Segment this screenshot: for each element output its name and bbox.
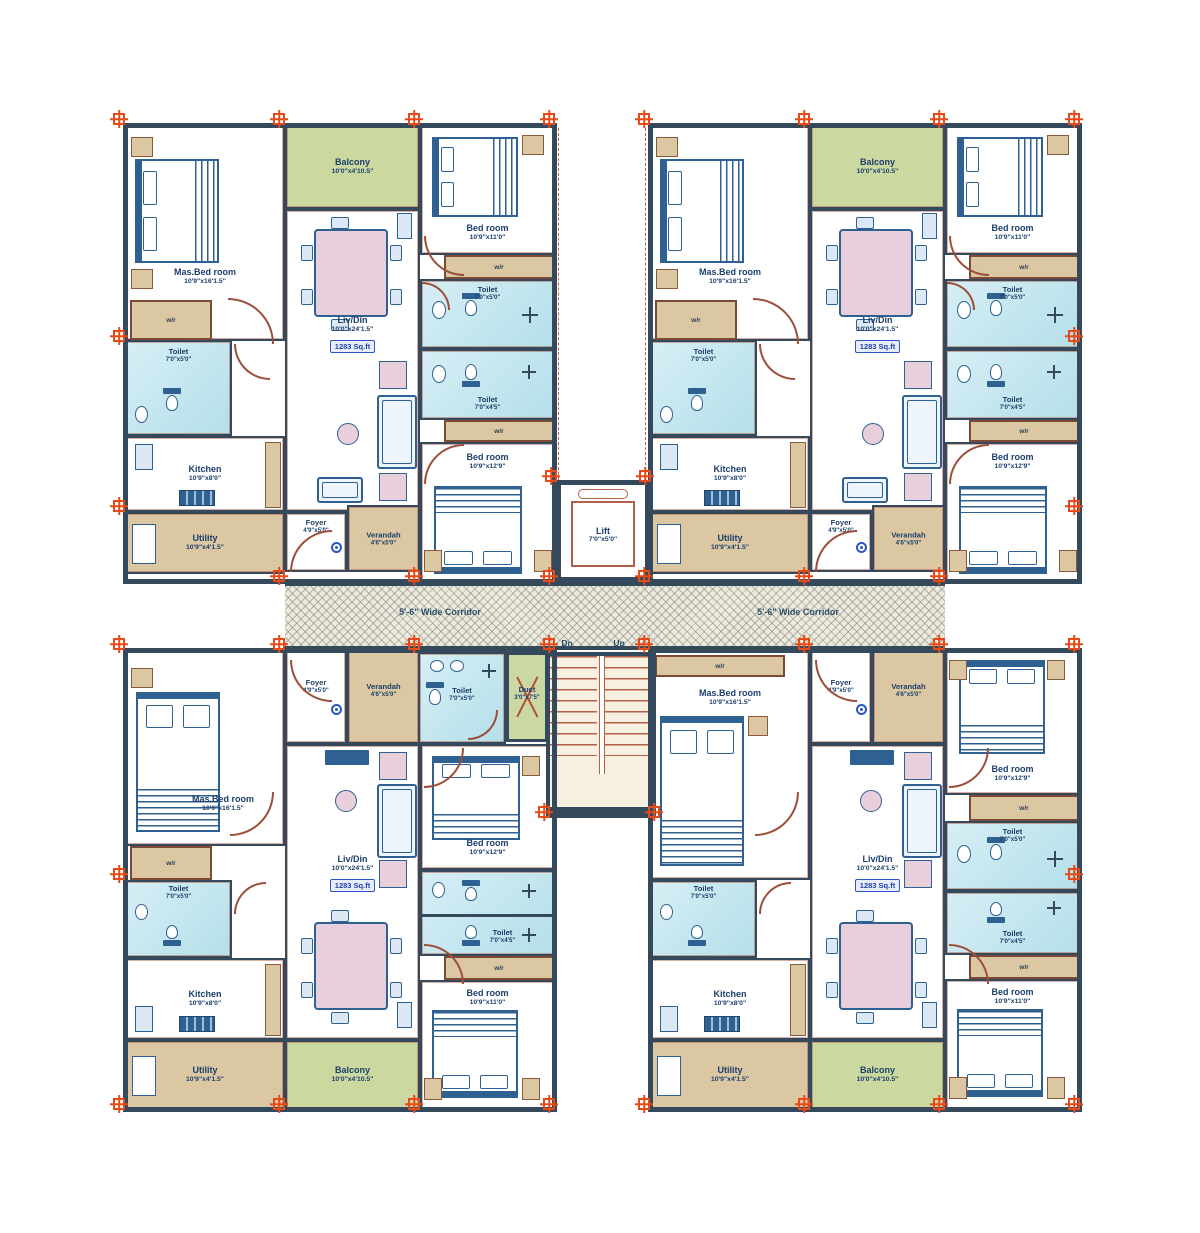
stool-icon <box>337 423 359 445</box>
verandah: Verandah4'6"x5'0" <box>347 650 420 744</box>
column-marker <box>798 570 810 582</box>
tv-cabinet-icon <box>325 750 369 765</box>
bed-icon <box>957 1009 1043 1097</box>
master-bedroom: Mas.Bed room10'9"x16'1.5" <box>650 650 810 880</box>
wash-basin-icon <box>450 660 464 672</box>
toilet-seat-icon <box>688 922 706 946</box>
column-marker <box>273 570 285 582</box>
area-badge: 1283 Sq.ft <box>855 340 900 353</box>
dining-table-icon <box>839 922 913 1010</box>
dining-table-icon <box>314 229 388 317</box>
nightstand-icon <box>949 660 967 680</box>
shower-icon <box>1047 365 1061 379</box>
column-marker <box>113 113 125 125</box>
stove-icon <box>704 490 740 506</box>
column-marker <box>408 570 420 582</box>
nightstand-icon <box>949 1077 967 1099</box>
wash-basin-icon <box>430 660 444 672</box>
tv-cabinet-icon <box>850 750 894 765</box>
coffee-table-icon <box>904 752 932 780</box>
nightstand-icon <box>1047 660 1065 680</box>
sofa-icon <box>902 395 942 469</box>
column-marker <box>543 1098 555 1110</box>
toilet: Toilet7'0"x5'0" <box>418 652 506 744</box>
column-marker <box>113 500 125 512</box>
column-marker <box>543 113 555 125</box>
chair-icon <box>331 910 349 922</box>
dining-table-icon <box>839 229 913 317</box>
door-arc-icon <box>759 344 795 380</box>
sink-icon <box>132 1056 156 1096</box>
wash-basin-icon <box>957 365 971 383</box>
coffee-table-icon <box>379 860 407 888</box>
foyer-badge <box>856 542 867 553</box>
sink-icon <box>657 524 681 564</box>
kitchen: Kitchen10'9"x8'0" <box>125 436 285 512</box>
corridor-flank-left <box>125 582 285 650</box>
chair-icon <box>826 938 838 954</box>
bed-icon <box>660 159 744 263</box>
stove-icon <box>704 1016 740 1032</box>
chair-icon <box>301 982 313 998</box>
utility: Utility10'9"x4'1.5" <box>650 1040 810 1110</box>
verandah: Verandah4'6"x5'0" <box>347 505 420 572</box>
verandah: Verandah4'6"x5'0" <box>872 650 945 744</box>
wardrobe: w/r <box>655 655 785 677</box>
toilet-seat-icon <box>462 293 480 319</box>
toilet: Toilet7'0"x5'0" <box>125 880 232 958</box>
bed-icon <box>957 137 1043 217</box>
sofa-icon <box>317 477 363 503</box>
chair-icon <box>826 245 838 261</box>
balcony: Balcony10'0"x4'10.5" <box>285 1040 420 1110</box>
lift: Lift7'0"x5'0" <box>556 480 650 582</box>
bed-icon <box>959 486 1047 574</box>
chair-icon <box>856 217 874 229</box>
sink-icon <box>132 524 156 564</box>
living-dining: Liv/Din10'0"x24'1.5"1283 Sq.ft <box>285 209 420 512</box>
nightstand-icon <box>424 1078 442 1100</box>
fridge-icon <box>922 1002 937 1028</box>
coffee-table-icon <box>379 361 407 389</box>
fridge-icon <box>397 213 412 239</box>
sink-icon <box>657 1056 681 1096</box>
wash-basin-icon <box>957 845 971 863</box>
stool-icon <box>335 790 357 812</box>
toilet-seat-icon <box>163 922 181 946</box>
shower-icon <box>522 365 536 379</box>
utility: Utility10'9"x4'1.5" <box>125 512 285 574</box>
kitchen-counter-icon <box>790 964 806 1036</box>
foyer-badge <box>331 704 342 715</box>
chair-icon <box>856 319 874 331</box>
column-marker <box>408 638 420 650</box>
nightstand-icon <box>131 137 153 157</box>
column-marker <box>113 1098 125 1110</box>
column-marker <box>639 470 651 482</box>
column-marker <box>1068 113 1080 125</box>
door-arc-icon <box>759 882 791 914</box>
stair-flight-up <box>605 656 652 756</box>
bed-icon <box>434 486 522 574</box>
shower-icon <box>482 664 496 678</box>
chair-icon <box>390 938 402 954</box>
balcony: Balcony10'0"x4'10.5" <box>810 1040 945 1110</box>
toilet-seat-icon <box>987 361 1005 387</box>
nightstand-icon <box>949 550 967 572</box>
nightstand-icon <box>1059 550 1077 572</box>
nightstand-icon <box>131 668 153 688</box>
balcony: Balcony10'0"x4'10.5" <box>285 125 420 209</box>
column-marker <box>933 638 945 650</box>
bedroom: Bed room10'9"x11'0" <box>420 980 555 1110</box>
chair-icon <box>331 1012 349 1024</box>
nightstand-icon <box>1047 135 1069 155</box>
balcony: Balcony10'0"x4'10.5" <box>810 125 945 209</box>
nightstand-icon <box>1047 1077 1065 1099</box>
fridge-icon <box>922 213 937 239</box>
floor-plan: 5'-6" Wide Corridor 5'-6" Wide Corridor … <box>0 0 1200 1233</box>
toilet-seat-icon <box>426 682 444 708</box>
door-arc-icon <box>949 236 989 276</box>
corridor-label: 5'-6" Wide Corridor <box>360 607 520 617</box>
wardrobe: w/r <box>969 795 1079 821</box>
construction-line <box>645 128 646 480</box>
toilet-seat-icon <box>163 388 181 414</box>
column-marker <box>545 470 557 482</box>
column-marker <box>638 1098 650 1110</box>
nightstand-icon <box>522 756 540 776</box>
toilet-seat-icon <box>987 293 1005 319</box>
kitchen: Kitchen10'9"x8'0" <box>650 436 810 512</box>
bed-icon <box>432 137 518 217</box>
chair-icon <box>915 938 927 954</box>
shower-icon <box>1047 901 1061 915</box>
kitchen: Kitchen10'9"x8'0" <box>125 958 285 1040</box>
toilet: Toilet7'0"x4'5" <box>420 349 555 420</box>
bed-icon <box>660 716 744 866</box>
chair-icon <box>390 982 402 998</box>
chair-icon <box>331 319 349 331</box>
chair-icon <box>301 938 313 954</box>
column-marker <box>798 113 810 125</box>
coffee-table-icon <box>904 860 932 888</box>
nightstand-icon <box>522 135 544 155</box>
column-marker <box>933 1098 945 1110</box>
chair-icon <box>390 289 402 305</box>
shower-icon <box>522 884 536 898</box>
sofa-icon <box>377 784 417 858</box>
column-marker <box>638 570 650 582</box>
column-marker <box>798 638 810 650</box>
chair-icon <box>826 982 838 998</box>
fridge-icon <box>660 444 678 470</box>
kitchen: Kitchen10'9"x8'0" <box>650 958 810 1040</box>
nightstand-icon <box>522 1078 540 1100</box>
nightstand-icon <box>131 269 153 289</box>
toilet-divider-wall <box>422 914 557 917</box>
stairs-up-label: Up <box>604 638 634 648</box>
toilet: Toilet7'0"x5'0" <box>650 340 757 436</box>
toilet: Toilet7'0"x5'0" <box>125 340 232 436</box>
lift-dims: 7'0"x5'0" <box>589 536 618 543</box>
column-marker <box>543 570 555 582</box>
door-arc-icon <box>424 236 464 276</box>
chair-icon <box>856 1012 874 1024</box>
column-marker <box>933 113 945 125</box>
toilet: Toilet7'0"x5'0" <box>650 880 757 958</box>
fridge-icon <box>135 1006 153 1032</box>
lift-label: Lift <box>596 526 610 536</box>
chair-icon <box>301 245 313 261</box>
bed-icon <box>136 692 220 832</box>
utility: Utility10'9"x4'1.5" <box>650 512 810 574</box>
chair-icon <box>331 217 349 229</box>
shower-icon <box>1047 307 1063 323</box>
column-marker <box>113 868 125 880</box>
kitchen-counter-icon <box>265 964 281 1036</box>
corridor-label: 5'-6" Wide Corridor <box>718 607 878 617</box>
nightstand-icon <box>424 550 442 572</box>
chair-icon <box>915 982 927 998</box>
chair-icon <box>856 910 874 922</box>
coffee-table-icon <box>904 361 932 389</box>
wash-basin-icon <box>432 882 445 898</box>
column-marker <box>1068 1098 1080 1110</box>
toilet-seat-icon <box>987 837 1005 863</box>
foyer-badge <box>856 704 867 715</box>
toilet: Toilet7'0"x5'0" <box>945 821 1080 891</box>
bedroom: Bed room10'9"x11'0" <box>945 979 1080 1110</box>
column-marker <box>1068 330 1080 342</box>
stair-rail <box>599 656 605 774</box>
bed-icon <box>959 660 1045 754</box>
shower-icon <box>522 928 536 942</box>
duct: Duct3'0"x7'5" <box>506 652 548 742</box>
column-marker <box>408 1098 420 1110</box>
kitchen-counter-icon <box>790 442 806 508</box>
area-badge: 1283 Sq.ft <box>855 879 900 892</box>
bed-icon <box>432 1010 518 1098</box>
coffee-table-icon <box>379 752 407 780</box>
coffee-table-icon <box>379 473 407 501</box>
living-dining: Liv/Din10'0"x24'1.5"1283 Sq.ft <box>810 209 945 512</box>
column-marker <box>1068 868 1080 880</box>
sofa-icon <box>377 395 417 469</box>
stool-icon <box>862 423 884 445</box>
wash-basin-icon <box>660 406 673 423</box>
column-marker <box>273 638 285 650</box>
stair-flight-down <box>550 656 597 756</box>
wash-basin-icon <box>432 365 446 383</box>
column-marker <box>538 806 550 818</box>
shower-icon <box>522 307 538 323</box>
corridor-flank-right <box>945 582 1080 650</box>
fridge-icon <box>660 1006 678 1032</box>
door-arc-icon <box>234 882 266 914</box>
chair-icon <box>915 289 927 305</box>
wash-basin-icon <box>135 904 148 920</box>
sofa-icon <box>902 784 942 858</box>
fridge-icon <box>135 444 153 470</box>
toilet-seat-icon <box>462 880 480 904</box>
stool-icon <box>860 790 882 812</box>
toilet-seat-icon <box>462 361 480 387</box>
area-badge: 1283 Sq.ft <box>330 340 375 353</box>
shower-icon <box>1047 851 1063 867</box>
toilet-seat-icon <box>987 899 1005 923</box>
toilet: Toilet7'0"x4'5" <box>420 870 555 956</box>
wardrobe: w/r <box>444 420 554 442</box>
sofa-icon <box>842 477 888 503</box>
toilet: Toilet7'0"x4'5" <box>945 891 1080 955</box>
door-arc-icon <box>234 344 270 380</box>
stove-icon <box>179 1016 215 1032</box>
column-marker <box>1068 500 1080 512</box>
stairs <box>546 652 656 818</box>
stair-landing-wall <box>550 807 652 814</box>
chair-icon <box>826 289 838 305</box>
wardrobe: w/r <box>130 300 212 340</box>
column-marker <box>113 330 125 342</box>
lift-door-icon <box>578 489 628 499</box>
nightstand-icon <box>748 716 768 736</box>
living-dining: Liv/Din10'0"x24'1.5"1283 Sq.ft <box>285 744 420 1040</box>
wardrobe: w/r <box>969 420 1079 442</box>
column-marker <box>1068 638 1080 650</box>
kitchen-counter-icon <box>265 442 281 508</box>
living-dining: Liv/Din10'0"x24'1.5"1283 Sq.ft <box>810 744 945 1040</box>
area-badge: 1283 Sq.ft <box>330 879 375 892</box>
stove-icon <box>179 490 215 506</box>
column-marker <box>273 1098 285 1110</box>
chair-icon <box>301 289 313 305</box>
column-marker <box>933 570 945 582</box>
column-marker <box>113 638 125 650</box>
column-marker <box>273 113 285 125</box>
toilet-seat-icon <box>462 922 480 946</box>
wardrobe: w/r <box>130 846 212 880</box>
nightstand-icon <box>656 269 678 289</box>
dining-table-icon <box>314 922 388 1010</box>
wash-basin-icon <box>660 904 673 920</box>
wardrobe: w/r <box>655 300 737 340</box>
column-marker <box>543 638 555 650</box>
wash-basin-icon <box>135 406 148 423</box>
column-marker <box>408 113 420 125</box>
column-marker <box>648 806 660 818</box>
column-marker <box>638 638 650 650</box>
chair-icon <box>915 245 927 261</box>
construction-line <box>558 128 559 480</box>
nightstand-icon <box>656 137 678 157</box>
chair-icon <box>390 245 402 261</box>
fridge-icon <box>397 1002 412 1028</box>
foyer-badge <box>331 542 342 553</box>
toilet-seat-icon <box>688 388 706 414</box>
toilet: Toilet7'0"x4'5" <box>945 349 1080 420</box>
column-marker <box>798 1098 810 1110</box>
column-marker <box>638 113 650 125</box>
verandah: Verandah4'6"x5'0" <box>872 505 945 572</box>
utility: Utility10'9"x4'1.5" <box>125 1040 285 1110</box>
coffee-table-icon <box>904 473 932 501</box>
bed-icon <box>135 159 219 263</box>
